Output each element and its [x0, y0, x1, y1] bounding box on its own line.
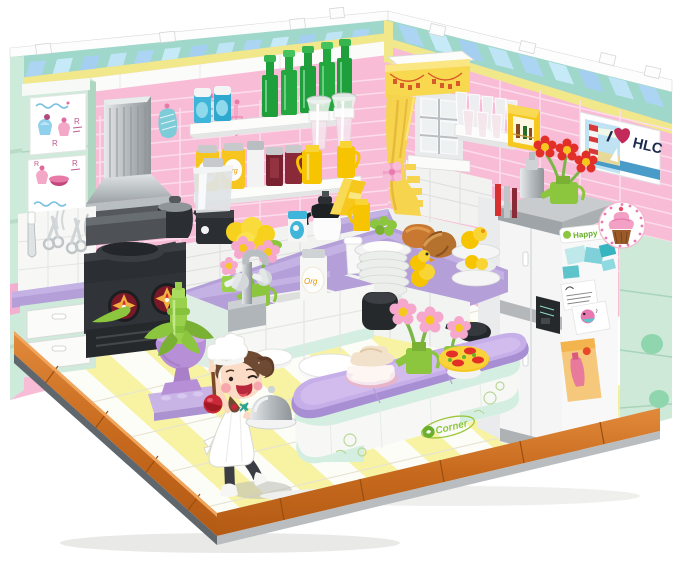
svg-text:R: R [52, 139, 58, 148]
svg-text:Org: Org [304, 277, 318, 286]
svg-text:R: R [74, 117, 80, 126]
svg-text:R: R [72, 159, 78, 168]
svg-text:R: R [34, 161, 39, 168]
